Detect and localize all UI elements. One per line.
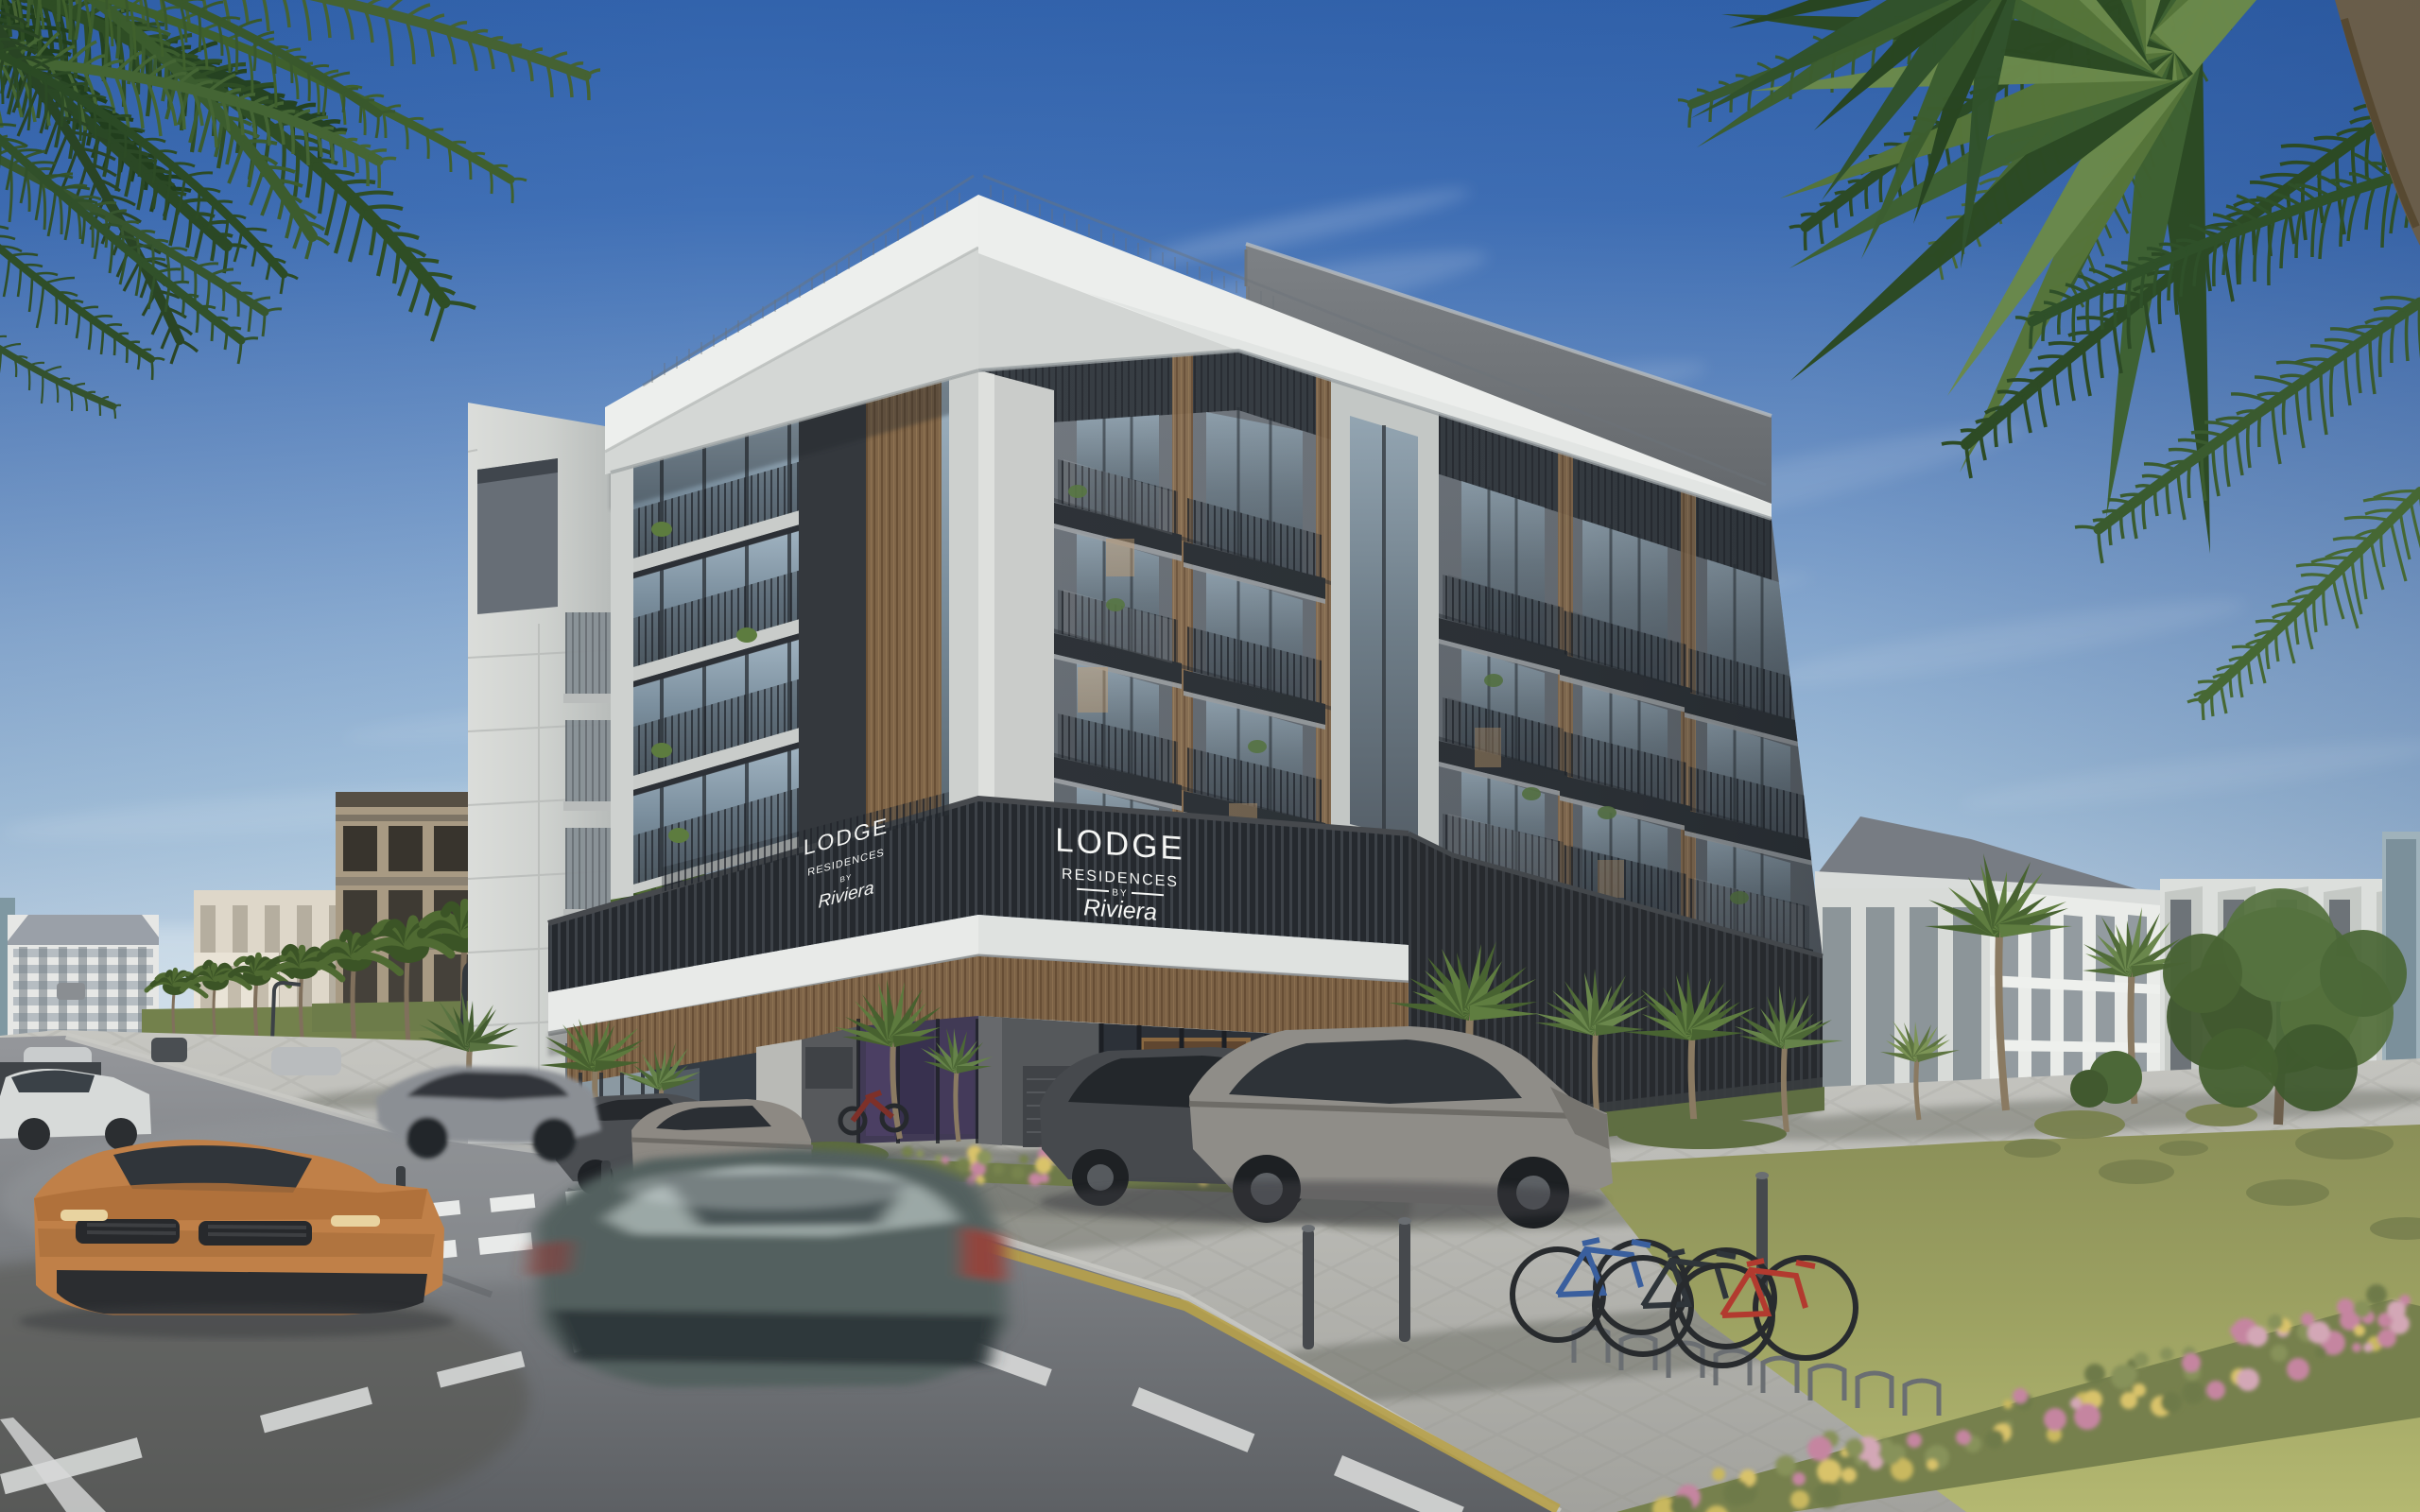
svg-text:Riviera: Riviera	[1083, 894, 1157, 925]
